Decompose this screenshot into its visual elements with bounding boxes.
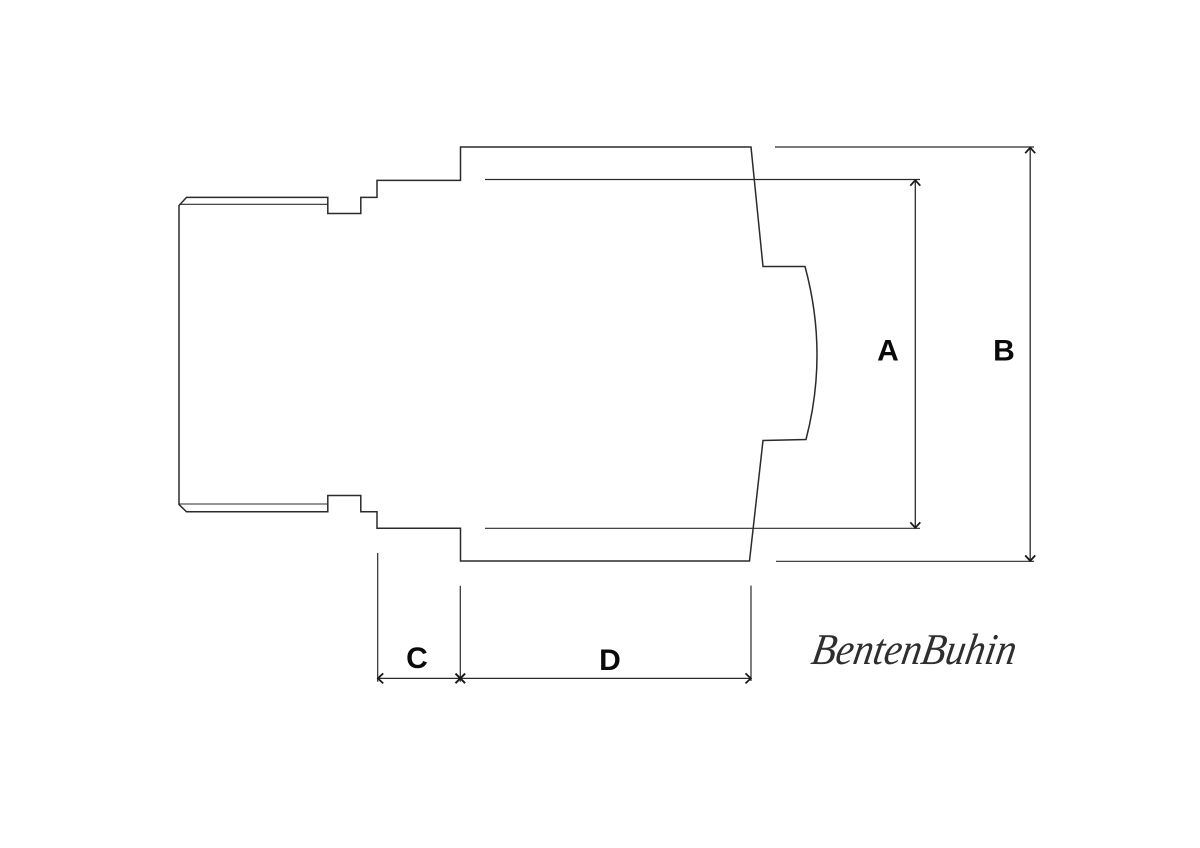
svg-text:C: C bbox=[406, 642, 428, 675]
svg-text:D: D bbox=[599, 644, 621, 677]
svg-text:A: A bbox=[877, 335, 899, 368]
svg-text:BentenBuhin: BentenBuhin bbox=[808, 624, 1021, 674]
svg-text:B: B bbox=[993, 335, 1015, 368]
